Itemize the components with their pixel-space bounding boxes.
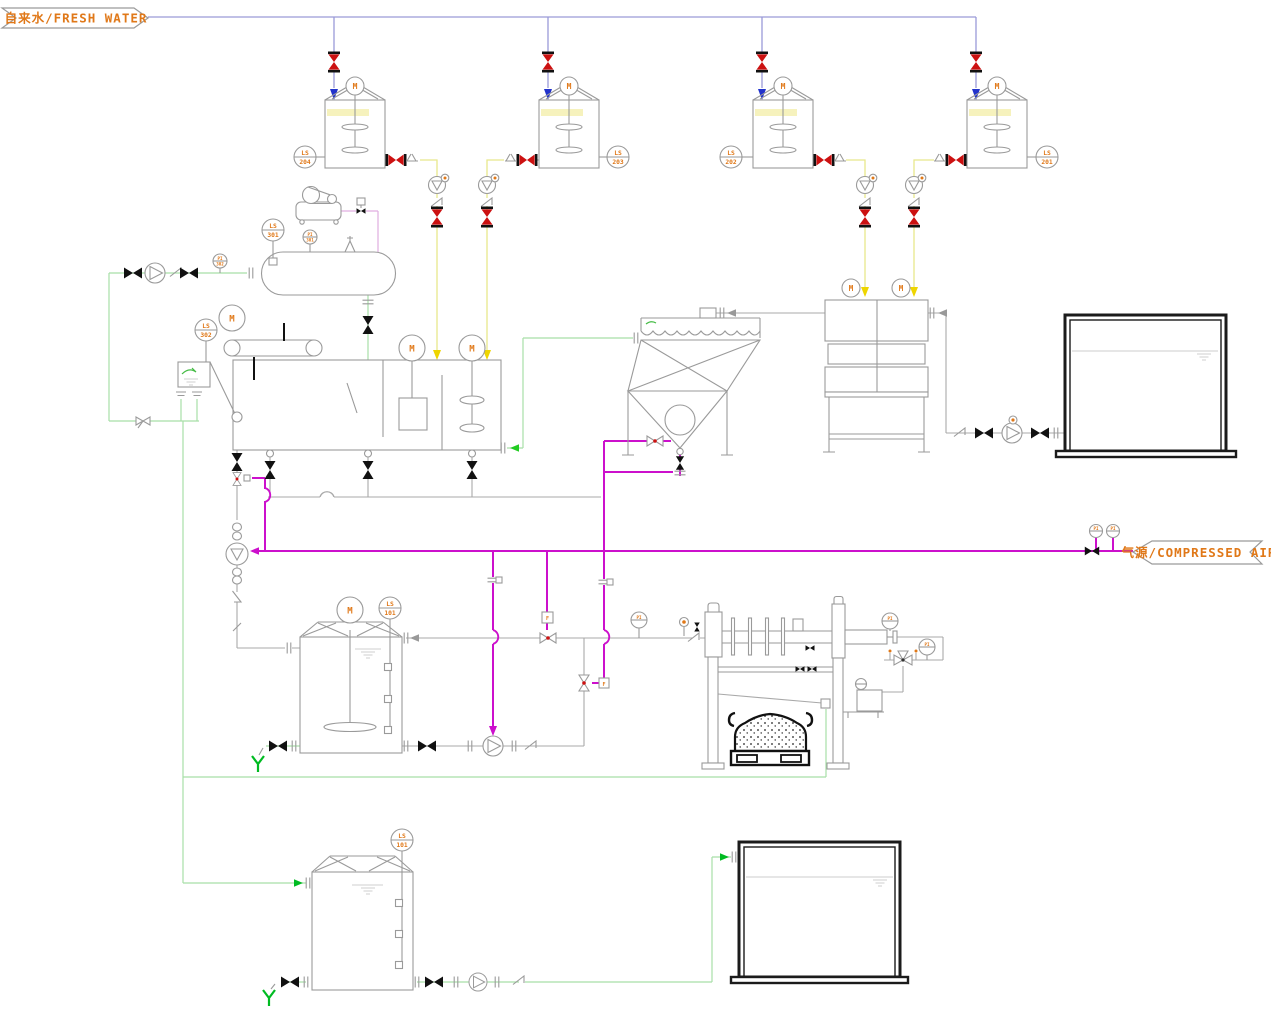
check-valve-icon: [170, 268, 181, 277]
chemical-tank-202: M LS 202: [720, 52, 846, 169]
check-valve-icon: [513, 976, 524, 985]
valve-icon: [418, 741, 436, 752]
compressed-air-banner: 气源/COMPRESSED AIR: [1121, 541, 1271, 564]
svg-text:301: 301: [267, 232, 279, 239]
svg-text:M: M: [347, 607, 353, 617]
check-valve-icon: [481, 198, 492, 207]
valve-icon: [467, 461, 478, 479]
metering-pump-icon: [906, 174, 926, 193]
pipe-fitting-icon: [501, 443, 505, 454]
hose-icon: [406, 154, 418, 161]
svg-text:PI: PI: [217, 256, 223, 261]
pipe-fitting-icon: [732, 852, 736, 863]
valve-icon: [970, 52, 982, 73]
svg-text:LS: LS: [614, 150, 622, 157]
filter-press: PI PI PI: [631, 597, 935, 770]
valve-icon: [1031, 428, 1049, 439]
inclined-screen: [622, 308, 760, 475]
storage-tank: LS 101: [263, 829, 524, 1006]
fresh-water-banner: 自来水/FRESH WATER: [2, 8, 148, 28]
svg-text:201: 201: [1041, 159, 1053, 166]
sludge-eductor: [226, 523, 259, 631]
air-compressor: [296, 187, 366, 225]
valve-icon: [481, 207, 493, 228]
flow-arrow-icon: [294, 879, 303, 887]
svg-text:PI: PI: [887, 616, 893, 621]
check-valve-icon: [233, 591, 242, 602]
air-arrow-icon: [489, 726, 497, 736]
chemical-tank-201: M LS 201: [934, 52, 1058, 169]
valve-icon: [363, 461, 374, 479]
svg-text:M: M: [409, 345, 415, 355]
drain-strainer-icon: [263, 990, 275, 1006]
svg-text:PI: PI: [636, 615, 642, 620]
svg-text:202: 202: [725, 159, 737, 166]
valve-icon: [357, 208, 366, 214]
strainer-icon: [136, 417, 150, 428]
valve-icon: [233, 473, 241, 486]
check-valve-icon: [688, 633, 699, 642]
valve-icon: [542, 52, 554, 73]
pipe-jump-icon: [320, 492, 334, 497]
valve-icon: [1085, 547, 1099, 556]
valve-icon: [540, 633, 556, 643]
svg-text:302: 302: [216, 262, 224, 267]
pump-icon: [469, 973, 487, 991]
pump-icon: [145, 263, 165, 283]
svg-text:PI: PI: [1110, 526, 1116, 531]
check-valve-icon: [954, 428, 965, 437]
valve-icon: [806, 645, 815, 651]
flow-arrow-icon: [410, 634, 419, 642]
pid-diagram: 自来水/FRESH WATER 气源/COMPRESSED AIR M LS 2…: [0, 0, 1271, 1009]
svg-text:M: M: [899, 284, 904, 293]
svg-text:101: 101: [384, 610, 396, 617]
hose-icon: [505, 154, 517, 161]
valve-icon: [431, 207, 443, 228]
valve-icon: [756, 52, 768, 73]
valve-icon: [269, 741, 287, 752]
svg-text:M: M: [353, 82, 358, 91]
valve-icon: [859, 207, 871, 228]
metering-pump-icon: [479, 174, 499, 193]
svg-text:F: F: [602, 682, 605, 688]
svg-text:PI: PI: [307, 232, 313, 237]
valve-icon: [814, 154, 835, 166]
pump-icon: [1002, 423, 1022, 443]
valve-icon: [517, 154, 538, 166]
pipe-jump-icon: [604, 630, 609, 644]
check-valve-icon: [908, 198, 919, 207]
flow-arrow-icon: [938, 309, 947, 317]
valve-icon: [265, 461, 276, 479]
drain-icon: [176, 392, 186, 396]
svg-text:M: M: [567, 82, 572, 91]
valve-icon: [579, 675, 589, 691]
sludge-cart: [729, 713, 812, 765]
drain-strainer-icon: [252, 756, 264, 772]
svg-text:LS: LS: [301, 150, 309, 157]
pipe-fitting-icon: [287, 643, 291, 654]
clear-water-tank: [1056, 315, 1236, 457]
fresh-water-banner-label: 自来水/FRESH WATER: [5, 11, 148, 26]
svg-text:M: M: [229, 315, 235, 325]
check-valve-icon: [859, 198, 870, 207]
svg-text:LS: LS: [202, 323, 210, 330]
drain-icon: [192, 392, 202, 396]
pipe-fitting-icon: [249, 268, 253, 279]
valve-icon: [180, 268, 198, 279]
valve-icon: [946, 154, 967, 166]
daf-basin: M LS 302 M M: [176, 305, 519, 485]
valve-icon: [281, 977, 299, 988]
compressor-pipe: [341, 211, 378, 252]
flocculation-unit: M M: [823, 279, 947, 452]
svg-text:101: 101: [396, 842, 408, 849]
flow-arrow-icon: [510, 444, 519, 452]
flow-arrow-icon: [720, 853, 729, 861]
svg-text:LS: LS: [269, 223, 277, 230]
chemical-tank-203: M LS 203: [505, 52, 629, 169]
hose-icon: [934, 154, 946, 161]
svg-text:M: M: [849, 284, 854, 293]
valve-icon: [386, 154, 407, 166]
air-arrow-icon: [250, 547, 259, 555]
filtrate-tank: [720, 842, 908, 983]
valve-icon: [328, 52, 340, 73]
chemical-tank-204: M LS 204: [294, 52, 418, 169]
metering-pump-icon: [857, 174, 877, 193]
pipe-fitting-icon: [306, 878, 310, 889]
svg-text:PI: PI: [1093, 526, 1099, 531]
pipe-fitting-icon: [634, 333, 638, 344]
valve-icon: [975, 428, 993, 439]
svg-text:M: M: [469, 345, 475, 355]
svg-text:M: M: [781, 82, 786, 91]
svg-text:PI: PI: [924, 642, 930, 647]
check-valve-icon: [525, 741, 536, 750]
valve-icon: [124, 268, 142, 279]
svg-text:LS: LS: [727, 150, 735, 157]
check-valve-icon: [431, 198, 442, 207]
svg-text:204: 204: [299, 159, 311, 166]
valve-icon: [694, 623, 700, 632]
svg-text:M: M: [995, 82, 1000, 91]
valve-icon: [363, 316, 374, 334]
svg-text:LS: LS: [386, 601, 394, 608]
fresh-water-pipes: [148, 17, 976, 88]
svg-text:LS: LS: [398, 833, 406, 840]
valve-icon: [647, 436, 663, 446]
flow-arrow-icon: [727, 309, 736, 317]
valve-icon: [232, 453, 243, 471]
svg-text:302: 302: [200, 332, 212, 339]
svg-text:F: F: [546, 616, 549, 622]
transfer-pump-train: [954, 416, 1058, 443]
hose-icon: [834, 154, 846, 161]
svg-text:203: 203: [612, 159, 624, 166]
diaphragm-pump-icon: [483, 736, 503, 756]
valve-icon: [676, 456, 684, 470]
valve-icon: [908, 207, 920, 228]
svg-text:LS: LS: [1043, 150, 1051, 157]
metering-pump-icon: [429, 174, 449, 193]
compressed-air-banner-label: 气源/COMPRESSED AIR: [1121, 545, 1271, 560]
pipe-jump-icon: [493, 630, 498, 644]
valve-icon: [425, 977, 443, 988]
recycle-pump-train: PI 302: [124, 254, 227, 428]
svg-text:301: 301: [306, 238, 314, 243]
three-way-valve-icon: [894, 651, 912, 665]
safety-valve-icon: [345, 236, 355, 252]
pipe-jump-icon: [265, 488, 270, 502]
